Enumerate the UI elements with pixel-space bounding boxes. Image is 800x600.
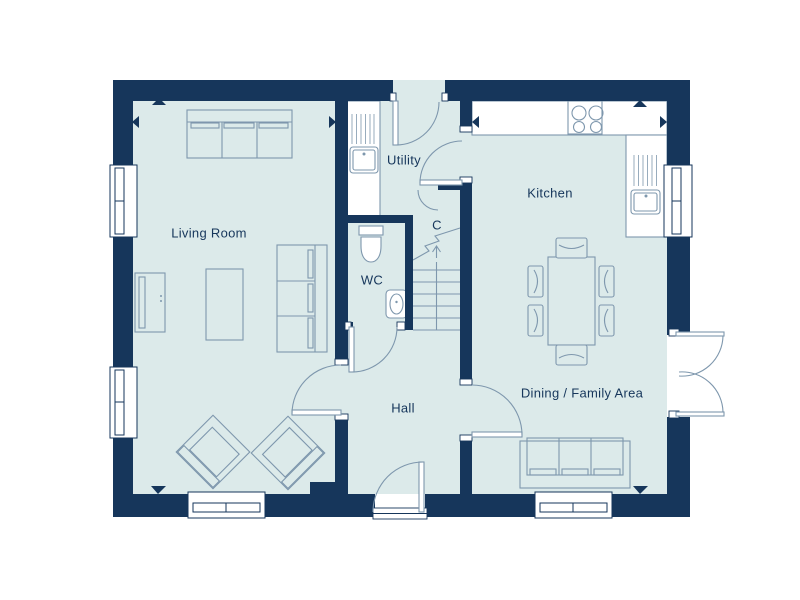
room-label-kitchen: Kitchen — [527, 187, 572, 200]
floor-plan-canvas — [0, 0, 800, 600]
room-label-utility: Utility — [387, 154, 421, 167]
tv-unit — [135, 273, 165, 332]
window-living-bottom — [188, 492, 265, 518]
side-sofa — [277, 245, 327, 352]
room-label-hall: Hall — [391, 402, 415, 415]
window-dining-bottom — [535, 492, 612, 518]
room-label-dining: Dining / Family Area — [521, 387, 643, 400]
dining-sofa — [520, 438, 630, 488]
french-doors — [669, 329, 724, 418]
back-door-opening — [393, 80, 445, 101]
window-living-left-lower — [110, 367, 137, 438]
floor-plan: Living Room Utility Kitchen WC C Hall Di… — [0, 0, 800, 600]
coffee-table — [206, 269, 243, 340]
window-living-left-upper — [110, 165, 137, 237]
toilet — [359, 226, 383, 262]
room-label-wc: WC — [361, 274, 383, 287]
room-label-living-room: Living Room — [171, 227, 247, 240]
room-label-cupboard: C — [432, 219, 442, 232]
dining-table — [548, 257, 595, 345]
utility-sink — [347, 101, 380, 217]
living-room-sofa — [187, 110, 292, 158]
window-kitchen-right — [664, 165, 692, 237]
wash-basin — [386, 290, 407, 318]
